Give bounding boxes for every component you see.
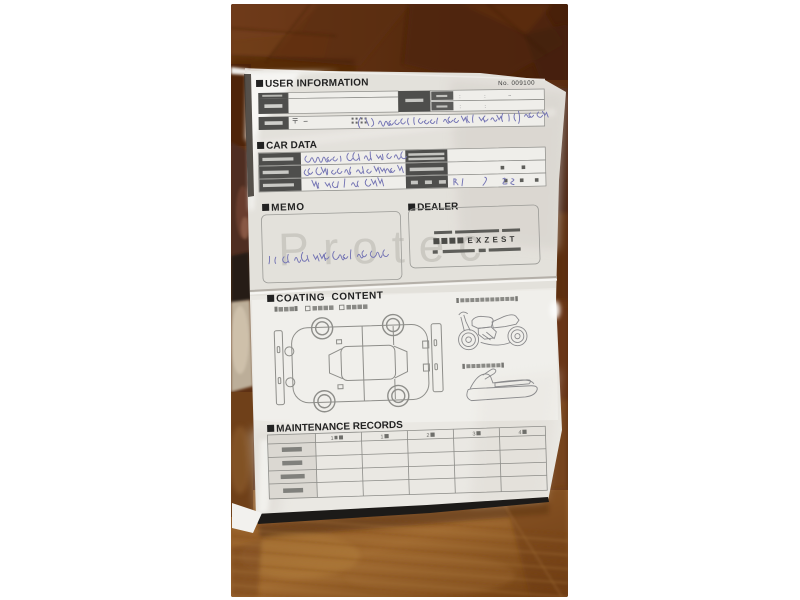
svg-text:3: 3 — [472, 431, 475, 437]
svg-text:CAR DATA: CAR DATA — [266, 140, 317, 152]
svg-text::: : — [484, 94, 485, 100]
svg-text::: : — [484, 104, 485, 110]
svg-text:USER INFORMATION: USER INFORMATION — [265, 77, 369, 89]
svg-text:EXZEST: EXZEST — [467, 235, 518, 246]
svg-text::: : — [459, 104, 460, 110]
svg-text:Protec: Protec — [278, 218, 496, 276]
svg-text:MEMO: MEMO — [271, 202, 305, 214]
svg-text:2: 2 — [426, 433, 429, 439]
svg-text::: : — [459, 94, 460, 100]
svg-text:1: 1 — [330, 436, 333, 442]
svg-text:1: 1 — [380, 434, 383, 440]
svg-text:–: – — [508, 93, 511, 99]
svg-text:4: 4 — [518, 430, 521, 436]
svg-text:No. 009100: No. 009100 — [498, 80, 535, 88]
